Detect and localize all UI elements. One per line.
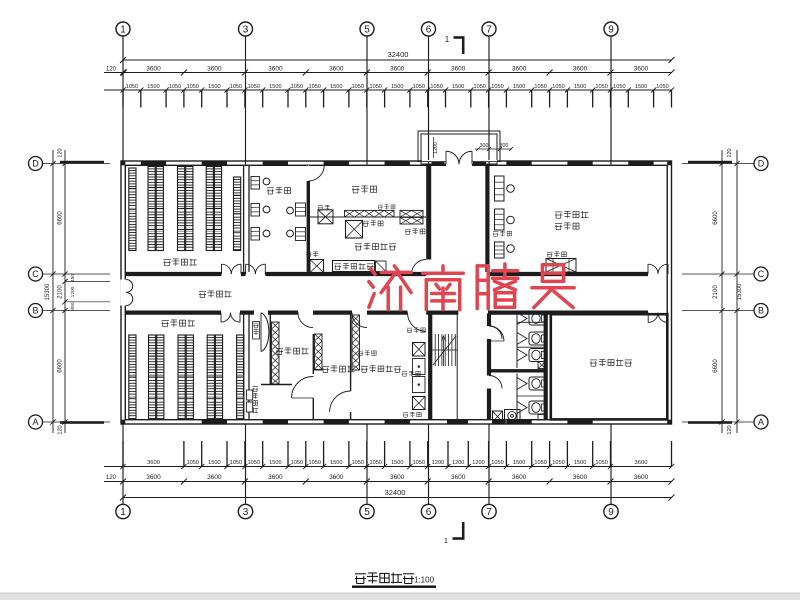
svg-text:1050: 1050 <box>595 84 607 90</box>
svg-text:1200: 1200 <box>472 460 484 466</box>
svg-text:1050: 1050 <box>413 84 425 90</box>
svg-text:120: 120 <box>727 148 733 157</box>
svg-text:1200: 1200 <box>70 286 76 297</box>
svg-text:1050: 1050 <box>126 84 138 90</box>
svg-text:2100: 2100 <box>713 285 719 299</box>
svg-text:1050: 1050 <box>352 460 364 466</box>
svg-text:3600: 3600 <box>635 460 648 466</box>
svg-text:6600: 6600 <box>713 359 719 373</box>
svg-text:B: B <box>758 306 764 316</box>
svg-text:1500: 1500 <box>391 84 403 90</box>
svg-text:450: 450 <box>70 274 76 282</box>
svg-text:3600: 3600 <box>146 66 161 73</box>
svg-text:3600: 3600 <box>147 460 160 466</box>
svg-text:1500: 1500 <box>208 460 220 466</box>
svg-text:6600: 6600 <box>58 359 64 373</box>
svg-text:1:100: 1:100 <box>414 576 435 585</box>
svg-text:9: 9 <box>608 507 614 518</box>
svg-text:3600: 3600 <box>634 474 649 481</box>
svg-text:A: A <box>32 417 38 427</box>
svg-text:C: C <box>32 269 39 279</box>
svg-text:1500: 1500 <box>513 84 525 90</box>
svg-text:1050: 1050 <box>352 84 364 90</box>
svg-text:6600: 6600 <box>713 211 719 225</box>
svg-text:1: 1 <box>444 536 448 545</box>
svg-text:C: C <box>758 269 765 279</box>
svg-text:1500: 1500 <box>269 460 281 466</box>
svg-text:450: 450 <box>70 302 76 310</box>
svg-text:3600: 3600 <box>512 66 527 73</box>
svg-text:A: A <box>758 417 764 427</box>
svg-text:1050: 1050 <box>595 460 607 466</box>
svg-text:D: D <box>32 159 39 169</box>
svg-text:3600: 3600 <box>634 66 649 73</box>
svg-text:15300: 15300 <box>45 283 51 300</box>
svg-text:1050: 1050 <box>248 460 260 466</box>
svg-text:1050: 1050 <box>248 84 260 90</box>
svg-text:1050: 1050 <box>552 84 564 90</box>
svg-text:1050: 1050 <box>552 460 564 466</box>
svg-text:120: 120 <box>58 425 64 434</box>
svg-text:1050: 1050 <box>473 84 485 90</box>
svg-text:3600: 3600 <box>451 66 466 73</box>
svg-text:1500: 1500 <box>269 84 281 90</box>
svg-text:1500: 1500 <box>635 84 647 90</box>
svg-text:1500: 1500 <box>574 84 586 90</box>
svg-text:1500: 1500 <box>452 84 464 90</box>
svg-text:1050: 1050 <box>308 460 320 466</box>
svg-text:3600: 3600 <box>451 474 466 481</box>
svg-text:1500: 1500 <box>330 84 342 90</box>
svg-text:32400: 32400 <box>385 488 406 497</box>
svg-text:120: 120 <box>106 475 117 481</box>
svg-text:1500: 1500 <box>147 84 159 90</box>
svg-text:3600: 3600 <box>329 66 344 73</box>
svg-text:120: 120 <box>58 148 64 157</box>
svg-text:3600: 3600 <box>268 474 283 481</box>
svg-text:1050: 1050 <box>308 84 320 90</box>
svg-text:300: 300 <box>480 143 489 149</box>
svg-text:1050: 1050 <box>613 84 625 90</box>
svg-text:1500: 1500 <box>391 460 403 466</box>
svg-text:3600: 3600 <box>573 474 588 481</box>
svg-text:2100: 2100 <box>58 285 64 299</box>
svg-text:6600: 6600 <box>58 211 64 225</box>
svg-text:1050: 1050 <box>291 460 303 466</box>
svg-text:1050: 1050 <box>534 460 546 466</box>
svg-text:3600: 3600 <box>207 474 222 481</box>
svg-text:5: 5 <box>364 25 370 36</box>
svg-text:6: 6 <box>426 25 432 36</box>
svg-text:1: 1 <box>120 507 126 518</box>
svg-text:B: B <box>32 306 38 316</box>
svg-text:3600: 3600 <box>573 66 588 73</box>
svg-text:15300: 15300 <box>737 283 743 300</box>
svg-text:3600: 3600 <box>390 474 405 481</box>
svg-text:1050: 1050 <box>187 460 199 466</box>
svg-text:3600: 3600 <box>268 66 283 73</box>
svg-text:1050: 1050 <box>491 84 503 90</box>
svg-text:1050: 1050 <box>413 460 425 466</box>
svg-text:1050: 1050 <box>430 84 442 90</box>
svg-text:1050: 1050 <box>230 460 242 466</box>
svg-text:3600: 3600 <box>512 474 527 481</box>
svg-text:3600: 3600 <box>207 66 222 73</box>
svg-text:3600: 3600 <box>329 474 344 481</box>
svg-text:1200: 1200 <box>433 142 439 154</box>
svg-text:1050: 1050 <box>491 460 503 466</box>
svg-text:1050: 1050 <box>369 84 381 90</box>
svg-text:1: 1 <box>120 25 126 36</box>
svg-text:1200: 1200 <box>452 460 464 466</box>
svg-text:6: 6 <box>426 507 432 518</box>
svg-text:1050: 1050 <box>169 84 181 90</box>
svg-text:1050: 1050 <box>534 84 546 90</box>
svg-text:3: 3 <box>243 507 249 518</box>
svg-text:1: 1 <box>445 35 450 44</box>
svg-text:1500: 1500 <box>330 460 342 466</box>
svg-text:3600: 3600 <box>146 474 161 481</box>
svg-text:7: 7 <box>486 25 492 36</box>
svg-text:120: 120 <box>106 67 117 73</box>
svg-text:1500: 1500 <box>513 460 525 466</box>
svg-text:1050: 1050 <box>230 84 242 90</box>
svg-text:1050: 1050 <box>187 84 199 90</box>
svg-text:7: 7 <box>486 507 492 518</box>
svg-text:5: 5 <box>364 507 370 518</box>
svg-text:1050: 1050 <box>291 84 303 90</box>
svg-text:1500: 1500 <box>574 460 586 466</box>
svg-text:1050: 1050 <box>656 84 668 90</box>
svg-text:32400: 32400 <box>388 50 409 59</box>
svg-text:3: 3 <box>243 25 249 36</box>
svg-text:120: 120 <box>727 425 733 434</box>
svg-text:1500: 1500 <box>208 84 220 90</box>
svg-text:1050: 1050 <box>369 460 381 466</box>
svg-text:3600: 3600 <box>390 66 405 73</box>
svg-text:1200: 1200 <box>432 460 444 466</box>
svg-text:D: D <box>758 159 765 169</box>
svg-text:9: 9 <box>608 25 614 36</box>
